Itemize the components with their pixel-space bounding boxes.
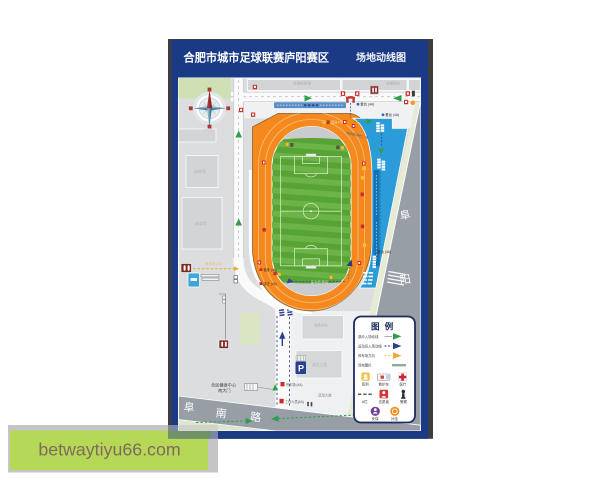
svg-text:体育馆: 体育馆 [195, 220, 207, 226]
svg-text:南: 南 [215, 406, 228, 420]
svg-text:betwaytiyu66.com: betwaytiyu66.com [38, 440, 180, 460]
svg-text:看台 (4A): 看台 (4A) [360, 101, 374, 106]
svg-text:领操测北: 领操测北 [386, 81, 401, 86]
svg-text:补给: 补给 [391, 416, 399, 421]
svg-text:运动员入场动线: 运动员入场动线 [358, 343, 382, 348]
svg-text:瑶海体育馆: 瑶海体育馆 [293, 81, 311, 86]
svg-text:康庄 (4A): 康庄 (4A) [264, 281, 277, 286]
svg-text:场地动线图: 场地动线图 [356, 51, 406, 64]
svg-text:图例: 图例 [371, 321, 398, 332]
svg-text:A栏: A栏 [362, 399, 368, 404]
svg-text:训练馆: 训练馆 [194, 168, 206, 174]
svg-text:签到: 签到 [362, 381, 370, 386]
svg-text:工作人员(4A): 工作人员(4A) [285, 399, 304, 404]
svg-text:运 动 员 通 道: 运 动 员 通 道 [311, 280, 328, 284]
svg-text:阜: 阜 [399, 208, 412, 223]
svg-text:场地围栏: 场地围栏 [358, 363, 372, 368]
svg-text:停车场 (4A): 停车场 (4A) [286, 382, 302, 387]
svg-text:合肥市城市足球联赛庐阳赛区: 合肥市城市足球联赛庐阳赛区 [184, 51, 329, 65]
svg-text:阜: 阜 [183, 400, 196, 414]
svg-text:看台 (4A): 看台 (4A) [385, 112, 399, 117]
svg-text:滨湖大道: 滨湖大道 [318, 393, 332, 398]
svg-text:南大门: 南大门 [218, 387, 231, 394]
svg-text:安保: 安保 [372, 416, 380, 421]
svg-text:警察: 警察 [400, 399, 408, 404]
svg-text:球场风淘: 球场风淘 [314, 323, 328, 328]
svg-text:健身 (4A): 健身 (4A) [264, 267, 277, 272]
svg-text:健身-P00: 健身-P00 [331, 120, 344, 125]
svg-text:观众入场动线: 观众入场动线 [358, 334, 379, 339]
svg-text:P: P [298, 364, 304, 374]
svg-text:演武大厦: 演武大厦 [312, 362, 327, 367]
svg-text:志愿者: 志愿者 [379, 399, 390, 404]
svg-text:停车场入口: 停车场入口 [205, 261, 222, 266]
svg-text:医疗: 医疗 [400, 381, 408, 386]
svg-text:路: 路 [249, 410, 262, 424]
svg-text:北广场: 北广场 [203, 128, 214, 133]
svg-text:看台 (4A): 看台 (4A) [377, 249, 391, 254]
svg-text:救护车: 救护车 [379, 381, 390, 386]
svg-text:停车场方向: 停车场方向 [358, 353, 376, 358]
